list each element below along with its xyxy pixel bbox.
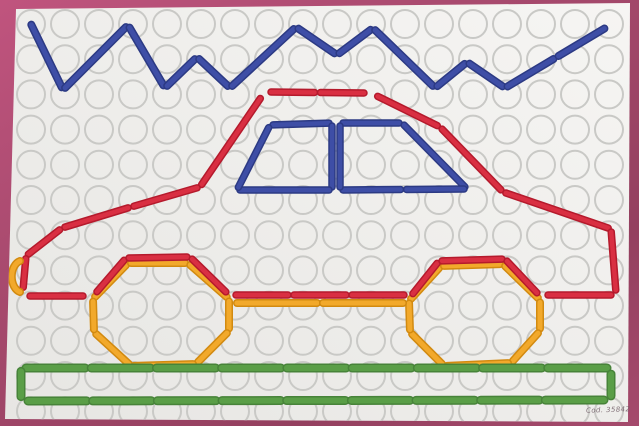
ground-bottom	[28, 400, 604, 401]
car-roof	[271, 92, 364, 93]
pegboard	[0, 0, 639, 426]
board-code-label: Cod. 35842	[586, 405, 631, 415]
pegboard-photo: Cod. 35842	[0, 0, 639, 426]
